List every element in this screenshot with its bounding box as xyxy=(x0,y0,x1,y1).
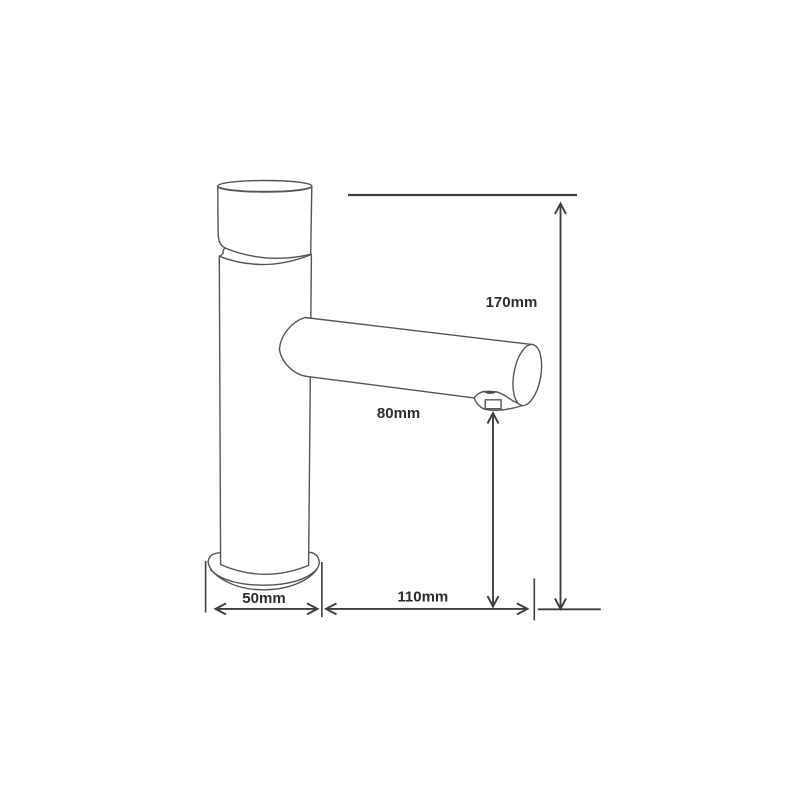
svg-text:80mm: 80mm xyxy=(377,405,420,422)
svg-text:170mm: 170mm xyxy=(486,294,538,311)
svg-text:110mm: 110mm xyxy=(397,588,448,605)
svg-text:50mm: 50mm xyxy=(242,590,285,607)
